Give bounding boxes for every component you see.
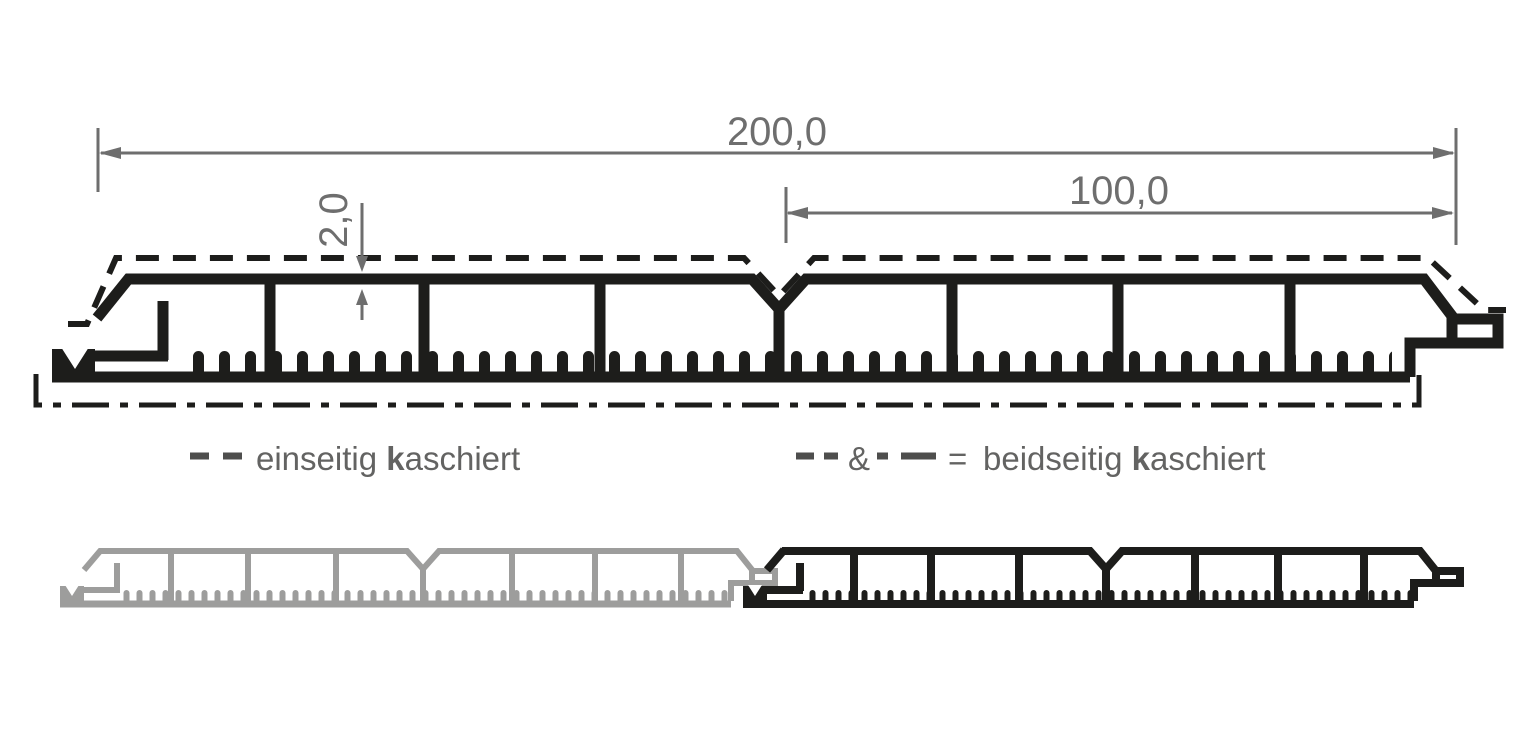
dim-thickness-label: 2,0: [312, 192, 356, 248]
teeth-row: [186, 351, 1392, 379]
arrowhead-right: [1432, 207, 1454, 219]
arrowhead-up: [356, 289, 368, 305]
arrowhead-right: [1433, 147, 1455, 159]
right-understep: [1414, 583, 1436, 601]
top-skin: [99, 551, 753, 571]
dim-100-label: 100,0: [1069, 169, 1169, 213]
legend-beidseitig: beidseitig kaschiert: [983, 440, 1266, 477]
legend-equals: =: [948, 440, 967, 477]
gray-profile-small: [60, 550, 775, 605]
dim-200-label: 200,0: [727, 110, 827, 154]
left-chamfer: [767, 550, 784, 570]
left-chamfer: [84, 550, 101, 570]
arrowhead-down: [356, 256, 368, 272]
right-understep: [1410, 343, 1452, 377]
tongue: [1436, 571, 1460, 583]
tongue: [752, 571, 775, 583]
main-profile: [36, 258, 1506, 405]
legend: einseitig kaschiert & = beidseitig kasch…: [190, 440, 1266, 477]
left-chamfer: [97, 277, 130, 318]
legend-ampersand: &: [848, 440, 870, 477]
diagram-canvas: 200,0 100,0 2,0 einseitig kaschiert & = …: [0, 0, 1530, 744]
black-profile-small: [743, 550, 1460, 605]
dimensions: 200,0 100,0 2,0: [98, 110, 1456, 320]
arrowhead-left: [786, 207, 808, 219]
legend-einseitig: einseitig kaschiert: [256, 440, 520, 477]
tongue: [1452, 319, 1498, 343]
top-skin: [782, 551, 1436, 571]
arrowhead-left: [99, 147, 121, 159]
